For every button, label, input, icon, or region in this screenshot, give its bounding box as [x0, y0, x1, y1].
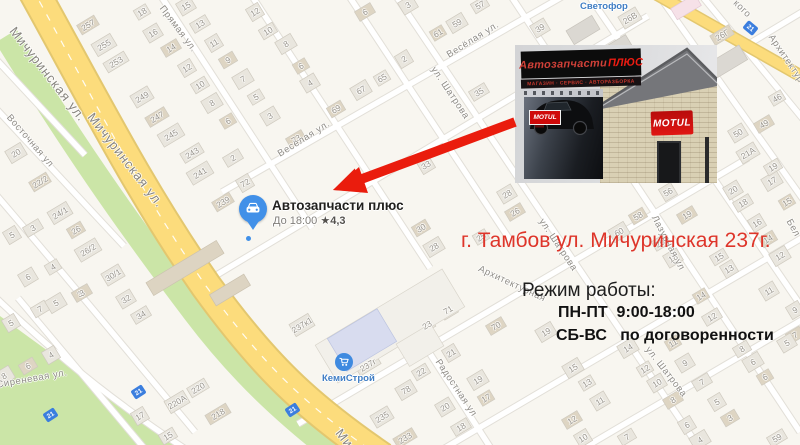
marker-rating: ★4,3	[320, 215, 345, 227]
shopping-cart-icon[interactable]	[335, 353, 353, 371]
working-hours-weekdays: ПН-ПТ 9:00-18:00	[558, 304, 695, 322]
marker-tail	[247, 221, 259, 230]
place-marker-car-icon[interactable]	[239, 195, 267, 223]
poi-label-svetofor[interactable]: Светофор	[580, 1, 628, 12]
storefront-photo: Автозапчасти ПЛЮС МАГАЗИН · СЕРВИС · АВТ…	[515, 45, 717, 183]
shop-sign: Автозапчасти ПЛЮС	[521, 48, 642, 78]
drainpipe	[705, 137, 709, 183]
advertising-banner: MOTUL	[524, 89, 603, 179]
marker-title[interactable]: Автозапчасти плюс	[272, 198, 404, 213]
marker-subtitle: До 18:00 ★4,3	[273, 214, 346, 227]
motul-wall-sign: MOTUL	[651, 110, 694, 135]
map-screenshot: Мичуринская ул.Мичуринская ул.Мичуринска…	[0, 0, 800, 445]
marker-location-dot	[246, 236, 251, 241]
poi-label-kemistroy[interactable]: КемиСтрой	[322, 373, 375, 384]
address-annotation: г. Тамбов ул. Мичуринская 237г.	[461, 229, 771, 253]
working-hours-title: Режим работы:	[522, 280, 656, 302]
sign-word-1: Автозапчасти	[519, 57, 607, 71]
working-hours-weekend: СБ-ВС по договоренности	[556, 327, 774, 345]
sign-word-2: ПЛЮС	[608, 56, 643, 69]
shop-door	[657, 141, 681, 183]
motul-logo: MOTUL	[529, 110, 561, 125]
marker-hours: До 18:00	[273, 215, 317, 227]
